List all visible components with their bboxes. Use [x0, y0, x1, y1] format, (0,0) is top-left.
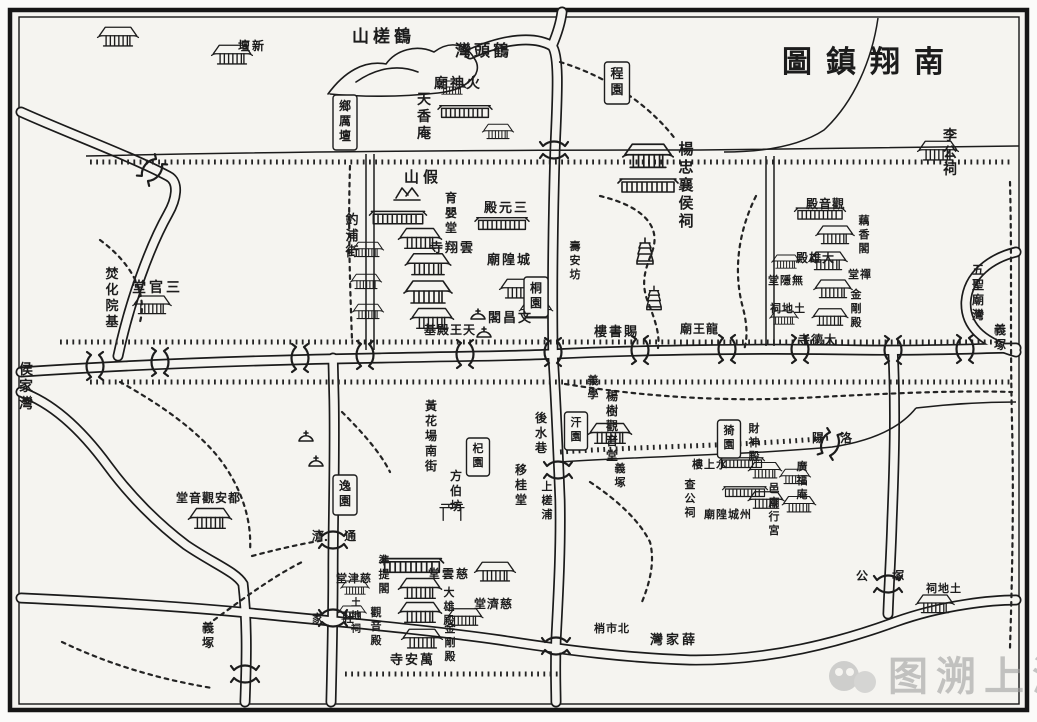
svg-text:李公祠: 李公祠 — [942, 127, 958, 178]
svg-text:灣家薛: 灣家薛 — [650, 632, 698, 648]
map-label-39: 杞園 — [467, 438, 490, 476]
map-label-62: 土地祠 — [351, 596, 361, 635]
svg-text:殿雄大: 殿雄大 — [795, 250, 835, 265]
map-label-8: 李公祠 — [942, 127, 958, 178]
map-label-19: 壽安坊 — [570, 239, 581, 281]
svg-text:後水巷: 後水巷 — [534, 410, 548, 455]
map-label-57: 堂雲慈 — [428, 566, 470, 581]
svg-text:基殿王天: 基殿王天 — [423, 322, 476, 337]
map-label-55: 堂音觀安都 — [176, 490, 241, 505]
map-label-22: 侯家灣 — [19, 361, 34, 412]
svg-text:公 塚: 公 塚 — [856, 569, 914, 583]
map-label-6: 鄉厲壇 — [333, 95, 357, 150]
map-label-20: 堂官三 — [132, 279, 183, 296]
svg-text:天香庵: 天香庵 — [416, 92, 432, 142]
map-label-28: 堂禪 — [848, 267, 872, 281]
map-label-11: 殿元三 — [483, 200, 529, 216]
svg-text:山假: 山假 — [404, 168, 442, 186]
map-label-16: 閣昌文 — [488, 310, 533, 326]
map-label-59: 堂津慈 — [336, 571, 372, 585]
map-label-9: 楊忠襄侯祠 — [677, 140, 694, 230]
map-label-35: 後水巷 — [534, 410, 548, 455]
map-label-27: 殿雄大 — [795, 250, 835, 265]
svg-text:圖鎮翔南: 圖鎮翔南 — [782, 45, 958, 80]
map-label-38: 方伯坊 — [450, 468, 462, 513]
svg-text:堂官三: 堂官三 — [132, 279, 183, 296]
svg-text:堂雲慈: 堂雲慈 — [428, 566, 470, 581]
map-label-42: 汗園 — [565, 412, 588, 450]
map-label-61: 堂濟慈 — [474, 596, 513, 611]
svg-text:釣浦街: 釣浦街 — [344, 212, 358, 260]
map-label-32: 寺德大 — [798, 332, 837, 347]
map-label-67: 公 塚 — [856, 569, 914, 583]
map-label-7: 程園 — [605, 62, 630, 104]
map-label-10: 山假 — [404, 168, 442, 186]
map-label-64: 金剛殿 — [444, 621, 457, 663]
nanxiang-town-map: 圖鎮翔南山槎鶴灣頭鶴廟神火天香庵壇新鄉厲壇程園李公祠楊忠襄侯祠山假殿元三育嬰堂寺… — [0, 0, 1037, 722]
map-label-30: 堂隱無 — [768, 273, 804, 287]
svg-text:廟隍城州: 廟隍城州 — [704, 507, 752, 521]
map-label-26: 藕香閣 — [858, 213, 871, 255]
map-label-13: 寺翔雲 — [430, 240, 475, 256]
svg-text:壽安坊: 壽安坊 — [570, 239, 581, 281]
map-label-24: 廟王龍 — [680, 321, 719, 336]
map-label-45: 財神殿 — [748, 421, 761, 463]
svg-text:山槎鶴: 山槎鶴 — [352, 26, 415, 47]
map-label-5: 壇新 — [238, 38, 266, 53]
svg-text:五聖廟灣: 五聖廟灣 — [972, 263, 984, 322]
svg-text:鄉厲壇: 鄉厲壇 — [339, 98, 351, 143]
svg-text:準提閣: 準提閣 — [379, 553, 391, 595]
map-label-66: 上槎浦 — [542, 479, 553, 521]
svg-text:楊忠襄侯祠: 楊忠襄侯祠 — [677, 140, 694, 230]
map-label-29: 金剛殿 — [850, 287, 863, 329]
svg-text:黃花場南街: 黃花場南街 — [424, 398, 437, 473]
map-label-69: 灣家薛 — [650, 632, 698, 648]
svg-text:堂音觀安都: 堂音觀安都 — [176, 490, 241, 505]
svg-text:楊樹觀音堂: 楊樹觀音堂 — [606, 388, 618, 463]
svg-text:大雄殿: 大雄殿 — [443, 585, 456, 627]
map-label-23: 樓書賜 — [594, 324, 639, 340]
svg-text:灣頭鶴: 灣頭鶴 — [455, 41, 512, 60]
svg-text:閣昌文: 閣昌文 — [488, 310, 533, 326]
svg-text:育嬰堂: 育嬰堂 — [445, 190, 457, 235]
svg-text:壇新: 壇新 — [238, 38, 266, 53]
map-label-51: 陽 洛 — [812, 430, 858, 445]
map-label-65: 寺安萬 — [390, 652, 435, 668]
svg-text:汗園: 汗園 — [571, 416, 582, 443]
watermark-text: 图溯上海 — [888, 654, 1037, 700]
svg-text:堂禪: 堂禪 — [848, 267, 872, 281]
map-label-37: 逸園 — [333, 475, 357, 515]
svg-text:金剛殿: 金剛殿 — [444, 621, 457, 663]
svg-text:上槎浦: 上槎浦 — [542, 479, 553, 521]
svg-text:堂隱無: 堂隱無 — [768, 273, 804, 287]
map-label-58: 準提閣 — [379, 553, 391, 595]
map-label-50: 廣福庵 — [796, 459, 809, 501]
svg-text:藕香閣: 藕香閣 — [858, 213, 871, 255]
map-label-12: 育嬰堂 — [445, 190, 457, 235]
svg-text:侯家灣: 侯家灣 — [19, 361, 34, 412]
svg-text:殿音觀: 殿音觀 — [805, 196, 845, 211]
svg-text:廟王龍: 廟王龍 — [680, 321, 719, 336]
svg-text:殿元三: 殿元三 — [483, 200, 529, 216]
map-label-33: 五聖廟灣 — [972, 263, 984, 322]
map-label-3: 廟神火 — [434, 75, 482, 92]
map-label-31: 祠地土 — [770, 301, 806, 315]
svg-text:移桂堂: 移桂堂 — [514, 462, 527, 507]
svg-text:濟 通: 濟 通 — [312, 528, 364, 543]
map-label-25: 殿音觀 — [805, 196, 845, 211]
svg-text:梢市北: 梢市北 — [594, 621, 630, 635]
svg-text:廟神火: 廟神火 — [434, 75, 482, 92]
map-label-68: 祠地土 — [926, 581, 962, 595]
svg-text:邑廟行宮: 邑廟行宮 — [768, 482, 780, 537]
map-label-0: 圖鎮翔南 — [782, 45, 958, 80]
map-label-40: 移桂堂 — [514, 462, 527, 507]
map-label-36: 黃花場南街 — [424, 398, 437, 473]
map-label-1: 山槎鶴 — [352, 26, 415, 47]
svg-text:樓上水: 樓上水 — [692, 457, 728, 471]
svg-text:查公祠: 查公祠 — [685, 477, 696, 519]
map-label-53: 濟 通 — [312, 528, 364, 543]
svg-text:方伯坊: 方伯坊 — [450, 468, 462, 513]
svg-text:樓書賜: 樓書賜 — [594, 324, 639, 340]
svg-text:觀音殿: 觀音殿 — [370, 605, 383, 647]
map-label-48: 廟隍城州 — [704, 507, 752, 521]
svg-text:祠地土: 祠地土 — [926, 581, 962, 595]
map-label-70: 梢市北 — [594, 621, 630, 635]
map-label-2: 灣頭鶴 — [455, 41, 512, 60]
map-label-46: 樓上水 — [692, 457, 728, 471]
svg-text:寺安萬: 寺安萬 — [390, 652, 435, 668]
svg-text:堂津慈: 堂津慈 — [336, 571, 372, 585]
svg-text:程園: 程園 — [610, 67, 623, 98]
map-label-63: 觀音殿 — [370, 605, 383, 647]
map-label-18: 釣浦街 — [344, 212, 358, 260]
svg-text:土地祠: 土地祠 — [351, 596, 361, 635]
svg-text:寺德大: 寺德大 — [798, 332, 837, 347]
map-label-60: 大雄殿 — [443, 585, 456, 627]
svg-text:廟隍城: 廟隍城 — [487, 252, 532, 268]
map-label-14: 廟隍城 — [487, 252, 532, 268]
svg-text:財神殿: 財神殿 — [748, 421, 761, 463]
map-label-43: 楊樹觀音堂 — [606, 388, 618, 463]
svg-text:堂濟慈: 堂濟慈 — [474, 596, 513, 611]
svg-text:金剛殿: 金剛殿 — [850, 287, 863, 329]
svg-text:陽 洛: 陽 洛 — [812, 430, 858, 445]
svg-text:寺翔雲: 寺翔雲 — [430, 240, 475, 256]
map-label-44: 猗園 — [718, 420, 741, 458]
map-label-4: 天香庵 — [416, 92, 432, 142]
map-label-17: 基殿王天 — [423, 322, 476, 337]
map-page: 圖鎮翔南山槎鶴灣頭鶴廟神火天香庵壇新鄉厲壇程園李公祠楊忠襄侯祠山假殿元三育嬰堂寺… — [0, 0, 1037, 722]
svg-text:廣福庵: 廣福庵 — [796, 459, 809, 501]
map-label-49: 邑廟行宮 — [768, 482, 780, 537]
svg-text:祠地土: 祠地土 — [770, 301, 806, 315]
map-label-47: 查公祠 — [685, 477, 696, 519]
